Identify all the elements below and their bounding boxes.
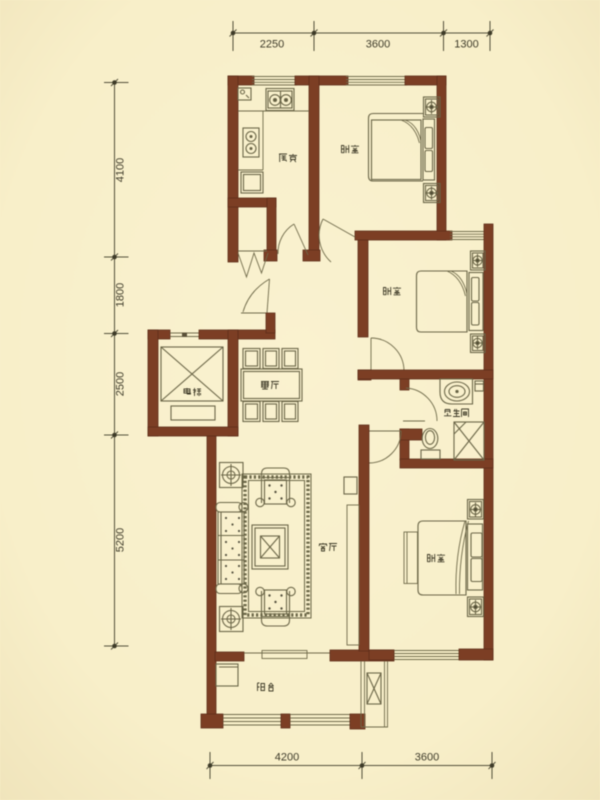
svg-text:1800: 1800 (115, 283, 127, 307)
svg-text:1300: 1300 (454, 39, 478, 51)
svg-text:2500: 2500 (115, 372, 127, 396)
svg-text:4100: 4100 (115, 158, 127, 182)
svg-text:2250: 2250 (260, 39, 284, 51)
svg-text:5200: 5200 (115, 528, 127, 552)
svg-text:3600: 3600 (366, 39, 390, 51)
svg-text:3600: 3600 (415, 752, 439, 764)
svg-text:4200: 4200 (275, 752, 299, 764)
